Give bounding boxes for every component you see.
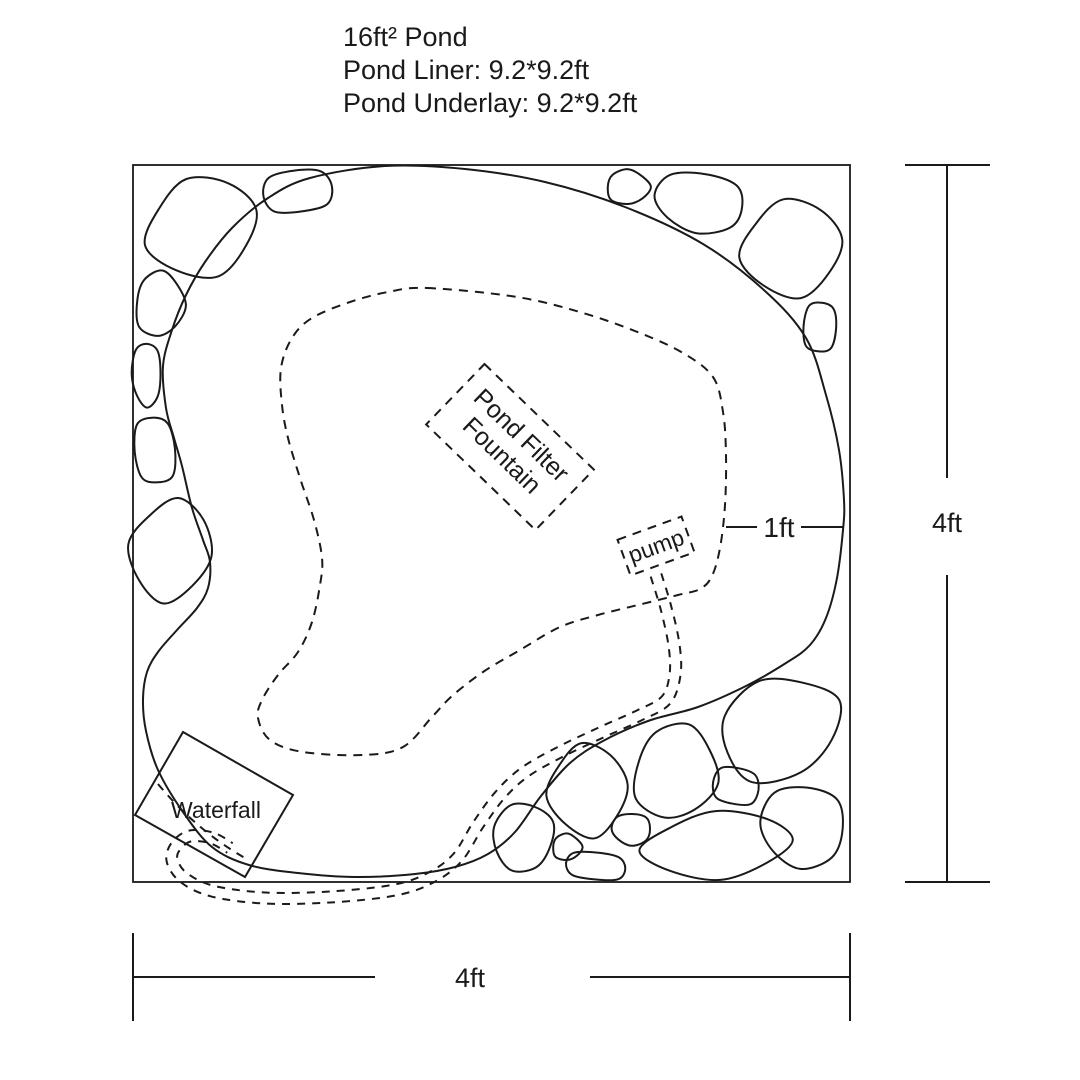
rock	[145, 177, 257, 278]
rock	[132, 344, 161, 408]
rock	[546, 743, 627, 839]
title-line-2: Pond Liner: 9.2*9.2ft	[343, 55, 590, 85]
rock	[134, 418, 175, 483]
shelf-dimension: 1ft	[726, 512, 844, 543]
height-dimension: 4ft	[905, 165, 990, 882]
pump-box-group: pump	[618, 517, 695, 576]
shelf-dimension-label: 1ft	[763, 512, 794, 543]
rock	[608, 169, 651, 204]
pump-pipe-line-outer	[177, 577, 670, 893]
rock	[760, 787, 843, 869]
rock	[722, 679, 841, 784]
rock	[634, 723, 719, 817]
width-dimension: 4ft	[133, 933, 850, 1021]
rock	[128, 498, 212, 604]
rocks-border	[128, 169, 843, 880]
rock	[493, 804, 554, 872]
pond-plan-diagram: 16ft² Pond Pond Liner: 9.2*9.2ft Pond Un…	[0, 0, 1080, 1080]
pump-label: pump	[625, 524, 688, 568]
rock	[739, 199, 842, 299]
waterfall-label: Waterfall	[171, 797, 261, 823]
title-line-3: Pond Underlay: 9.2*9.2ft	[343, 88, 638, 118]
title-line-1: 16ft² Pond	[343, 22, 468, 52]
pond-plan-canvas: 16ft² Pond Pond Liner: 9.2*9.2ft Pond Un…	[0, 0, 1080, 1080]
rock	[137, 270, 186, 335]
height-dimension-label: 4ft	[932, 508, 963, 538]
title-block: 16ft² Pond Pond Liner: 9.2*9.2ft Pond Un…	[343, 22, 638, 118]
rock	[263, 170, 332, 213]
width-dimension-label: 4ft	[455, 963, 486, 993]
pond-filter-box-group: Pond Filter Fountain	[426, 364, 594, 530]
pond-shelf-contour	[258, 288, 727, 755]
rock	[713, 767, 759, 805]
pump-pipe-line-inner	[166, 573, 681, 904]
rock	[612, 814, 650, 846]
